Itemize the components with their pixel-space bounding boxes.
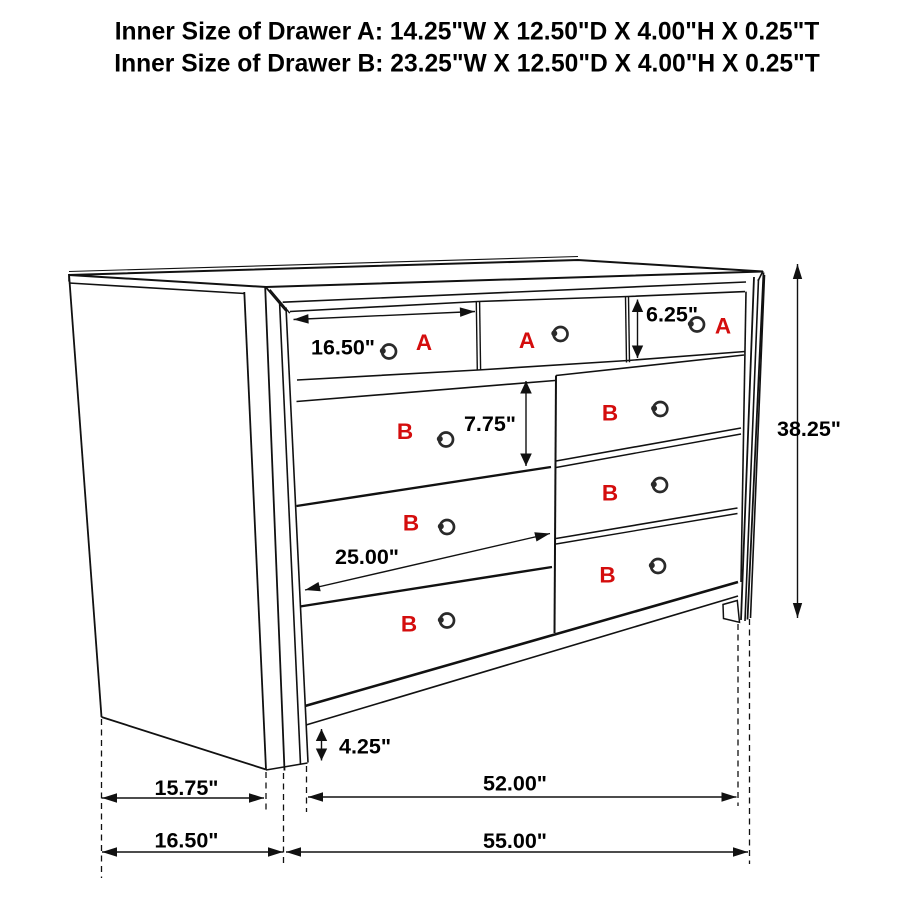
svg-text:B: B <box>599 563 615 588</box>
svg-text:38.25": 38.25" <box>777 417 841 441</box>
svg-text:A: A <box>416 330 432 355</box>
svg-text:7.75": 7.75" <box>464 412 516 436</box>
svg-text:16.50": 16.50" <box>155 829 219 853</box>
svg-text:16.50": 16.50" <box>311 336 375 360</box>
svg-text:A: A <box>519 328 535 353</box>
svg-text:B: B <box>401 612 417 637</box>
svg-text:Inner Size of Drawer A: 14.25": Inner Size of Drawer A: 14.25"W X 12.50"… <box>115 19 820 46</box>
svg-text:B: B <box>403 511 419 536</box>
svg-text:25.00": 25.00" <box>335 545 399 569</box>
svg-text:52.00": 52.00" <box>483 772 547 796</box>
svg-text:B: B <box>397 419 413 444</box>
svg-text:B: B <box>602 481 618 506</box>
svg-text:B: B <box>602 401 618 426</box>
svg-text:Inner Size of Drawer B: 23.25": Inner Size of Drawer B: 23.25"W X 12.50"… <box>114 51 820 78</box>
svg-text:A: A <box>715 314 731 339</box>
svg-text:55.00": 55.00" <box>483 829 547 853</box>
svg-text:15.75": 15.75" <box>155 776 219 800</box>
svg-text:4.25": 4.25" <box>339 735 391 759</box>
svg-text:6.25": 6.25" <box>646 303 698 327</box>
